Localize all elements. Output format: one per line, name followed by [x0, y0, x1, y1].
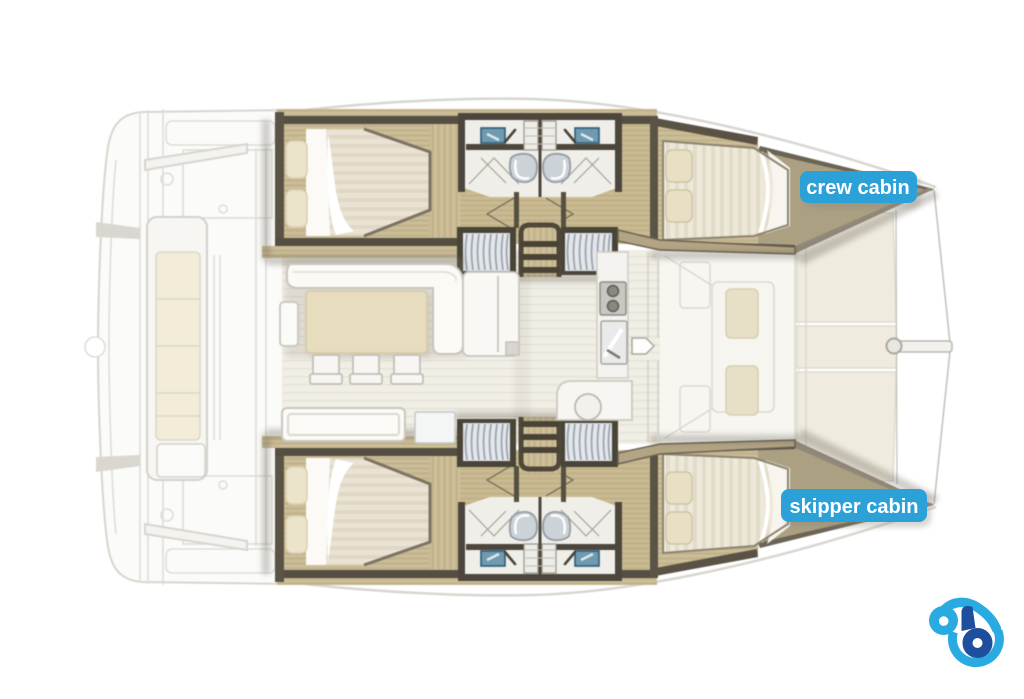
svg-text:skipper cabin: skipper cabin [790, 496, 919, 518]
svg-text:crew cabin: crew cabin [806, 177, 909, 199]
